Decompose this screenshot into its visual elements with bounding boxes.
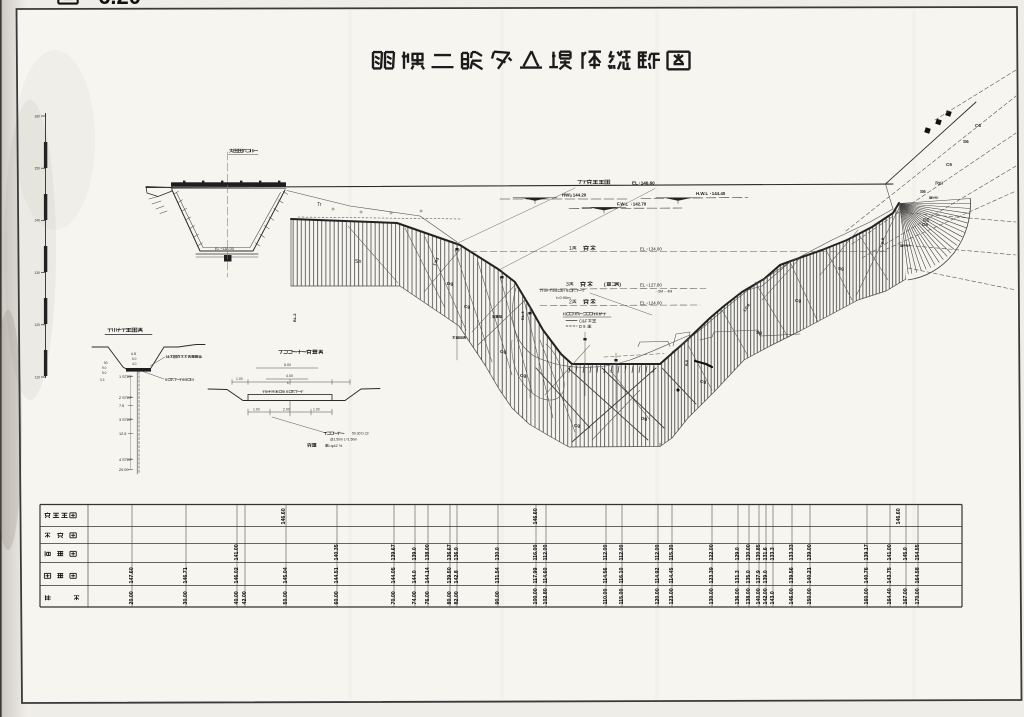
svg-text:B-8: B-8 <box>881 238 885 244</box>
svg-text:20.00: 20.00 <box>119 468 129 472</box>
svg-text:12.5: 12.5 <box>119 432 126 436</box>
svg-text:145.0: 145.0 <box>903 547 909 560</box>
svg-text:136.00: 136.00 <box>735 588 741 604</box>
svg-text:140.21: 140.21 <box>807 567 813 583</box>
svg-text:150: 150 <box>34 167 40 171</box>
svg-text:143.75: 143.75 <box>887 567 893 583</box>
svg-text:EL: EL <box>640 283 646 288</box>
svg-text:0.3: 0.3 <box>100 378 105 382</box>
svg-text:143.0: 143.0 <box>770 591 776 604</box>
svg-text:80.00: 80.00 <box>447 591 453 604</box>
svg-text:5.0: 5.0 <box>102 371 107 375</box>
svg-text:130.0: 130.0 <box>495 547 501 560</box>
svg-text:140.76: 140.76 <box>864 567 870 583</box>
svg-text:A.B: A.B <box>131 352 136 356</box>
svg-text:112.00: 112.00 <box>655 545 661 561</box>
svg-text:142.8: 142.8 <box>454 570 460 583</box>
svg-text:102.80: 102.80 <box>543 588 549 604</box>
svg-text:117.99: 117.99 <box>533 568 539 584</box>
svg-text:139.00: 139.00 <box>807 544 813 560</box>
svg-text:2: 2 <box>569 300 572 306</box>
svg-text:H.W.L: H.W.L <box>696 191 709 196</box>
svg-text:Cg: Cg <box>520 373 526 378</box>
svg-text:146.60: 146.60 <box>281 508 287 524</box>
svg-text:115.30: 115.30 <box>669 545 675 561</box>
svg-text:142.70: 142.70 <box>633 202 647 207</box>
svg-text:@1.50m L=1.50m: @1.50m L=1.50m <box>330 438 357 442</box>
svg-text:139.0: 139.0 <box>412 547 418 560</box>
svg-text:Cg: Cg <box>574 423 580 428</box>
svg-text:112.00: 112.00 <box>543 545 549 561</box>
svg-text:115.00: 115.00 <box>619 589 625 605</box>
svg-text:82.00: 82.00 <box>454 591 460 604</box>
svg-text:164.40: 164.40 <box>887 588 893 604</box>
svg-text:130: 130 <box>34 271 40 275</box>
svg-text:146.60: 146.60 <box>896 508 902 524</box>
svg-text:50.00: 50.00 <box>283 591 289 604</box>
svg-text:141.00: 141.00 <box>234 544 240 560</box>
svg-text:144.20: 144.20 <box>573 193 587 198</box>
svg-text:114.56: 114.56 <box>603 568 609 584</box>
svg-text:122.00: 122.00 <box>709 544 715 560</box>
svg-text:Cg: Cg <box>500 349 506 354</box>
svg-text:138.00: 138.00 <box>425 544 431 560</box>
svg-text:116.10: 116.10 <box>619 568 625 584</box>
svg-text:1: 1 <box>569 246 572 252</box>
svg-text:144.40: 144.40 <box>712 191 726 196</box>
svg-text:112.00: 112.00 <box>603 545 609 561</box>
svg-text:160: 160 <box>34 114 40 118</box>
svg-text:50: 50 <box>104 361 108 365</box>
svg-text:S6: S6 <box>920 189 926 194</box>
svg-text:129.0: 129.0 <box>735 547 741 560</box>
svg-text:116.00: 116.00 <box>533 545 539 561</box>
svg-text:123.00: 123.00 <box>669 588 675 604</box>
svg-text:B-6: B-6 <box>685 360 689 366</box>
svg-text:136.0: 136.0 <box>454 547 460 560</box>
svg-text:¢: ¢ <box>287 381 289 385</box>
svg-text:134.00: 134.00 <box>648 247 662 252</box>
svg-text:131.6: 131.6 <box>763 547 769 560</box>
svg-text:BL-4: BL-4 <box>521 311 525 320</box>
svg-text:90.00: 90.00 <box>495 591 501 604</box>
svg-text:Tr: Tr <box>317 202 322 208</box>
svg-text:Dg: Dg <box>641 416 647 421</box>
svg-text:130.00: 130.00 <box>709 588 715 604</box>
svg-text:S6: S6 <box>963 139 969 144</box>
svg-text:127.00: 127.00 <box>648 283 662 288</box>
svg-text:Cg: Cg <box>700 379 706 384</box>
svg-text:Sn: Sn <box>355 259 361 265</box>
svg-text:1.00: 1.00 <box>313 408 320 412</box>
svg-text:EL: EL <box>640 301 646 306</box>
svg-text:130.00: 130.00 <box>746 544 752 560</box>
svg-text:20.00: 20.00 <box>129 591 135 604</box>
svg-text:60.00: 60.00 <box>334 591 340 604</box>
svg-text:144.05: 144.05 <box>391 567 397 583</box>
svg-text:146.00: 146.00 <box>789 588 795 604</box>
svg-text:6.20: 6.20 <box>98 0 141 9</box>
svg-text:7.5: 7.5 <box>119 404 124 408</box>
svg-text:138.00: 138.00 <box>746 588 752 604</box>
svg-text:139.67: 139.67 <box>391 544 397 560</box>
svg-text:131.3: 131.3 <box>735 570 741 583</box>
svg-text:6.0: 6.0 <box>132 357 137 361</box>
svg-text:1.00: 1.00 <box>253 408 260 412</box>
svg-text:110: 110 <box>35 375 41 379</box>
svg-text:HWL: HWL <box>562 193 572 198</box>
svg-text:Sg: Sg <box>756 330 762 335</box>
svg-text:EL: EL <box>215 247 220 251</box>
svg-text:140.00: 140.00 <box>756 588 762 604</box>
svg-text:=φ42: =φ42 <box>329 444 338 448</box>
svg-text:30.00: 30.00 <box>183 591 189 604</box>
svg-text:154.55: 154.55 <box>915 544 921 560</box>
svg-text:112.00: 112.00 <box>619 545 625 561</box>
svg-text:74.00: 74.00 <box>412 591 418 604</box>
svg-text:139.50: 139.50 <box>447 567 453 583</box>
svg-text:130.85: 130.85 <box>756 544 762 560</box>
svg-text:BL-2: BL-2 <box>293 314 297 322</box>
svg-text:120: 120 <box>34 323 40 327</box>
svg-text:114.92: 114.92 <box>655 568 661 584</box>
svg-text:139.17: 139.17 <box>864 544 870 560</box>
svg-text:114.45: 114.45 <box>669 568 675 584</box>
svg-text:144.51: 144.51 <box>334 567 340 583</box>
svg-text:42.00: 42.00 <box>242 591 248 604</box>
svg-text:136.67: 136.67 <box>447 544 453 560</box>
svg-text:131.54: 131.54 <box>495 567 501 583</box>
svg-text:40.00: 40.00 <box>234 591 240 604</box>
svg-text:6.00: 6.00 <box>284 363 291 367</box>
svg-text:F.W.L: F.W.L <box>617 202 629 207</box>
svg-text:141.00: 141.00 <box>887 544 893 560</box>
svg-text:120.00: 120.00 <box>655 588 661 604</box>
svg-text:146.02: 146.02 <box>234 567 240 583</box>
svg-text:1.00: 1.00 <box>236 377 243 381</box>
svg-text:140: 140 <box>34 219 40 223</box>
svg-text:D: D <box>579 324 582 329</box>
svg-text:135.0: 135.0 <box>746 570 752 583</box>
svg-text:140.35: 140.35 <box>334 544 340 560</box>
svg-text:139.0: 139.0 <box>763 570 769 583</box>
svg-text:146.71: 146.71 <box>183 567 189 583</box>
svg-text:4.00: 4.00 <box>286 374 293 378</box>
svg-text:144.0: 144.0 <box>412 570 418 583</box>
svg-text:114.60: 114.60 <box>543 568 549 584</box>
svg-text:Cg: Cg <box>464 304 470 309</box>
svg-text:C6: C6 <box>975 123 981 128</box>
svg-text:139.56: 139.56 <box>789 567 795 583</box>
svg-text:4.0: 4.0 <box>132 362 137 366</box>
svg-text:Dg: Dg <box>447 281 453 286</box>
svg-text:146.60: 146.60 <box>533 508 539 524</box>
svg-text:145.04: 145.04 <box>283 567 289 583</box>
svg-text:C6: C6 <box>923 218 930 224</box>
svg-text:9.0: 9.0 <box>102 366 107 370</box>
svg-text:3: 3 <box>566 282 569 288</box>
svg-text:133.3: 133.3 <box>770 547 776 560</box>
svg-text:Sg: Sg <box>838 266 844 271</box>
svg-text:C&F: C&F <box>579 319 588 324</box>
svg-text:123.39: 123.39 <box>709 567 715 583</box>
svg-text:146.60: 146.60 <box>641 181 655 186</box>
svg-text:167.00: 167.00 <box>903 588 909 604</box>
svg-text:147.60: 147.60 <box>129 567 135 583</box>
svg-text:2.00: 2.00 <box>283 408 290 412</box>
svg-text:144.14: 144.14 <box>425 567 431 583</box>
svg-text:70.00: 70.00 <box>391 591 397 604</box>
svg-text:142.00: 142.00 <box>763 588 769 604</box>
svg-text:164.58: 164.58 <box>915 567 921 583</box>
svg-text:EL: EL <box>640 247 646 252</box>
svg-text:150.00: 150.00 <box>807 588 813 604</box>
svg-text:C6: C6 <box>946 162 952 167</box>
svg-text:160.00: 160.00 <box>864 588 870 604</box>
svg-text:133.33: 133.33 <box>789 544 795 560</box>
svg-text:110.00: 110.00 <box>603 589 609 605</box>
svg-text:76.00: 76.00 <box>425 591 431 604</box>
svg-text:50.30 D.22: 50.30 D.22 <box>352 432 369 436</box>
svg-text:124.00: 124.00 <box>648 301 662 306</box>
svg-text:→5M ←4M: →5M ←4M <box>655 290 672 294</box>
svg-text:170.00: 170.00 <box>915 588 921 604</box>
svg-text:Cg: Cg <box>795 298 801 303</box>
svg-text:138.00: 138.00 <box>222 247 234 251</box>
svg-text:137.9: 137.9 <box>756 570 762 583</box>
svg-text:100.00: 100.00 <box>533 588 539 604</box>
svg-text:EL: EL <box>632 181 638 186</box>
